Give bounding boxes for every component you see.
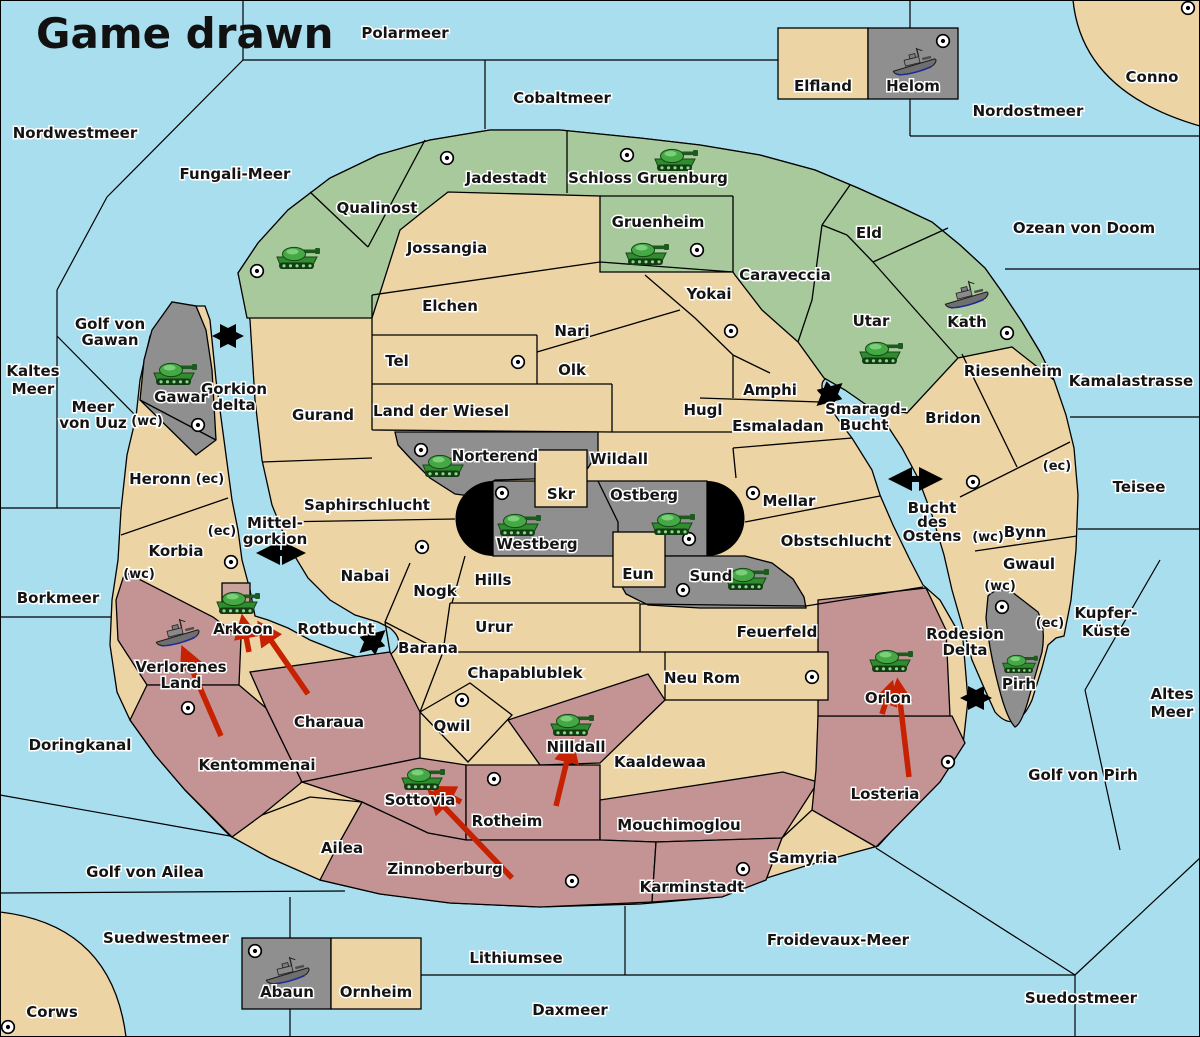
label-borkmeer: Borkmeer: [17, 589, 100, 607]
supply-center-dot: [496, 487, 509, 500]
label-conno: Conno: [1126, 68, 1179, 86]
label-ornheim: Ornheim: [340, 983, 412, 1001]
coast-tag-wc: (wc): [984, 579, 1016, 594]
supply-center-dot: [621, 149, 634, 162]
label-daxmeer: Daxmeer: [532, 1001, 608, 1019]
label-elfland: Elfland: [794, 77, 852, 95]
label-froidevaux-meer: Froidevaux-Meer: [767, 931, 910, 949]
coast-tag-wc: (wc): [123, 567, 155, 582]
label-suedwestmeer: Suedwestmeer: [103, 929, 229, 947]
label-karminstadt: Karminstadt: [640, 878, 745, 896]
label-polarmeer: Polarmeer: [361, 24, 449, 42]
label-ostberg: Ostberg: [610, 486, 678, 504]
label-cobaltmeer: Cobaltmeer: [513, 89, 611, 107]
supply-center-dot: [677, 584, 690, 597]
label-abaun: Abaun: [260, 983, 314, 1001]
label-bucht-des-ostens: Ostens: [903, 527, 962, 545]
label-riesenheim: Riesenheim: [964, 362, 1062, 380]
supply-center-dot: [182, 702, 195, 715]
label-teisee: Teisee: [1113, 478, 1166, 496]
coast-tag-wc: (wc): [131, 414, 163, 429]
army-unit-gruenheim: [626, 243, 669, 265]
army-unit-pirh: [1003, 655, 1038, 673]
label-gwaul: Gwaul: [1003, 555, 1055, 573]
label-kaltes-meer: Meer: [12, 380, 55, 398]
supply-center-dot: [456, 694, 469, 707]
label-amphi: Amphi: [743, 381, 797, 399]
label-ozean-von-doom: Ozean von Doom: [1013, 219, 1155, 237]
supply-center-dot: [416, 541, 429, 554]
label-charaua: Charaua: [294, 713, 364, 731]
army-unit-candolti: [277, 247, 320, 269]
label-golf-von-ailea: Golf von Ailea: [86, 863, 204, 881]
label-urur: Urur: [475, 618, 513, 636]
label-kamalastrasse: Kamalastrasse: [1069, 372, 1193, 390]
label-rodesion-delta: Delta: [942, 641, 987, 659]
label-suedostmeer: Suedostmeer: [1025, 989, 1138, 1007]
page-title: Game drawn: [36, 9, 334, 58]
label-neu-rom: Neu Rom: [664, 669, 740, 687]
label-saphirschlucht: Saphirschlucht: [304, 496, 430, 514]
label-land-der-wiesel: Land der Wiesel: [373, 402, 509, 420]
label-golf-von-gawan: Gawan: [81, 331, 138, 349]
label-sottovia: Sottovia: [385, 791, 456, 809]
label-nilldall: Nilldall: [546, 738, 605, 756]
label-nari: Nari: [554, 322, 589, 340]
label-kath: Kath: [947, 313, 987, 331]
label-hugl: Hugl: [683, 401, 722, 419]
label-hills: Hills: [475, 571, 512, 589]
label-heronn: Heronn: [129, 470, 191, 488]
label-losteria: Losteria: [851, 785, 920, 803]
game-map: Polarmeer Nordwestmeer Cobaltmeer Nordos…: [0, 0, 1200, 1037]
coast-tag-ec: (ec): [208, 524, 236, 539]
label-kaltes-meer: Kaltes: [6, 362, 59, 380]
label-jossangia: Jossangia: [406, 239, 488, 257]
label-helom: Helom: [886, 77, 940, 95]
label-kupfer-kueste: Küste: [1082, 622, 1130, 640]
label-nordwestmeer: Nordwestmeer: [13, 124, 138, 142]
label-gruenheim: Gruenheim: [612, 213, 705, 231]
coast-tag-ec: (ec): [1036, 616, 1064, 631]
label-mouchimoglou: Mouchimoglou: [617, 816, 740, 834]
supply-center-dot: [2, 1021, 15, 1034]
label-korbia: Korbia: [148, 542, 203, 560]
label-esmaladan: Esmaladan: [732, 417, 824, 435]
label-lithiumsee: Lithiumsee: [469, 949, 562, 967]
label-obstschlucht: Obstschlucht: [781, 532, 892, 550]
label-rotheim: Rotheim: [472, 812, 543, 830]
label-yokai: Yokai: [685, 285, 731, 303]
label-eun: Eun: [622, 565, 654, 583]
label-nordostmeer: Nordostmeer: [973, 102, 1084, 120]
label-ailea: Ailea: [321, 839, 363, 857]
label-smaragd-bucht: Bucht: [840, 416, 889, 434]
supply-center-dot: [1182, 2, 1195, 15]
label-gorkion-delta: delta: [212, 396, 255, 414]
supply-center-dot: [806, 671, 819, 684]
label-doringkanal: Doringkanal: [29, 736, 132, 754]
army-unit-arkoon: [217, 592, 260, 614]
label-samyria: Samyria: [769, 849, 838, 867]
supply-center-dot: [225, 556, 238, 569]
supply-center-dot: [1001, 327, 1014, 340]
army-unit-westberg: [498, 514, 541, 536]
army-unit-gawar: [154, 363, 197, 385]
label-gawar: Gawar: [154, 388, 208, 406]
label-altes-meer: Altes: [1150, 685, 1193, 703]
label-rotbucht: Rotbucht: [297, 620, 374, 638]
supply-center-dot: [249, 945, 262, 958]
supply-center-dot: [967, 476, 980, 489]
supply-center-dot: [415, 444, 428, 457]
label-kaaldewaa: Kaaldewaa: [614, 753, 706, 771]
army-unit-utar: [860, 342, 903, 364]
label-utar: Utar: [853, 312, 890, 330]
label-mittel-gorkion: gorkion: [243, 530, 308, 548]
coast-tag-ec: (ec): [1043, 459, 1071, 474]
label-schloss-gruenburg: Schloss Gruenburg: [568, 169, 728, 187]
label-qwil: Qwil: [434, 717, 471, 735]
label-corws: Corws: [26, 1003, 78, 1021]
label-caraveccia: Caraveccia: [739, 266, 831, 284]
supply-center-dot: [737, 863, 750, 876]
label-westberg: Westberg: [496, 535, 577, 553]
label-elchen: Elchen: [422, 297, 478, 315]
coast-tag-wc: (wc): [972, 530, 1004, 545]
label-nogk: Nogk: [413, 582, 458, 600]
label-barana: Barana: [398, 639, 458, 657]
label-bridon: Bridon: [925, 409, 981, 427]
label-chapablublek: Chapablublek: [467, 664, 583, 682]
label-kentommenai: Kentommenai: [198, 756, 315, 774]
label-wildall: Wildall: [590, 450, 648, 468]
label-norterend: Norterend: [452, 447, 539, 465]
label-bynn: Bynn: [1004, 523, 1047, 541]
supply-center-dot: [192, 419, 205, 432]
supply-center-dot: [996, 601, 1009, 614]
army-unit-orlon: [870, 650, 913, 672]
supply-center-dot: [942, 756, 955, 769]
supply-center-dot: [441, 152, 454, 165]
supply-center-dot: [251, 265, 264, 278]
label-eld: Eld: [856, 224, 882, 242]
supply-center-dot: [566, 875, 579, 888]
label-jadestadt: Jadestadt: [465, 169, 547, 187]
army-unit-ostberg: [652, 513, 695, 535]
label-verlorenes-land: Land: [160, 674, 201, 692]
label-qualinost: Qualinost: [337, 199, 418, 217]
army-unit-nilldall: [551, 714, 594, 736]
label-arkoon: Arkoon: [213, 620, 273, 638]
label-mellar: Mellar: [763, 492, 817, 510]
supply-center-dot: [725, 325, 738, 338]
label-meer-von-uuz: von Uuz: [59, 414, 127, 432]
label-olk: Olk: [558, 361, 587, 379]
supply-center-dot: [747, 487, 760, 500]
label-zinnoberburg: Zinnoberburg: [387, 860, 503, 878]
label-sund: Sund: [690, 567, 733, 585]
label-golf-von-pirh: Golf von Pirh: [1028, 766, 1138, 784]
coast-tag-ec: (ec): [196, 472, 224, 487]
supply-center-dot: [691, 244, 704, 257]
label-nabai: Nabai: [341, 567, 390, 585]
supply-center-dot: [937, 35, 950, 48]
label-orlon: Orlon: [865, 689, 911, 707]
label-skr: Skr: [547, 485, 576, 503]
supply-center-dot: [512, 356, 525, 369]
label-fungali-meer: Fungali-Meer: [180, 165, 291, 183]
label-altes-meer: Meer: [1151, 703, 1194, 721]
label-pirh: Pirh: [1002, 675, 1036, 693]
label-gurand: Gurand: [292, 406, 354, 424]
supply-center-dot: [488, 773, 501, 786]
label-kupfer-kueste: Kupfer-: [1074, 604, 1137, 622]
army-unit-sottovia: [402, 768, 445, 790]
army-unit-schloss-gruenburg: [655, 149, 698, 171]
game-map-page: Polarmeer Nordwestmeer Cobaltmeer Nordos…: [0, 0, 1200, 1037]
label-feuerfeld: Feuerfeld: [737, 623, 818, 641]
label-tel: Tel: [385, 352, 409, 370]
